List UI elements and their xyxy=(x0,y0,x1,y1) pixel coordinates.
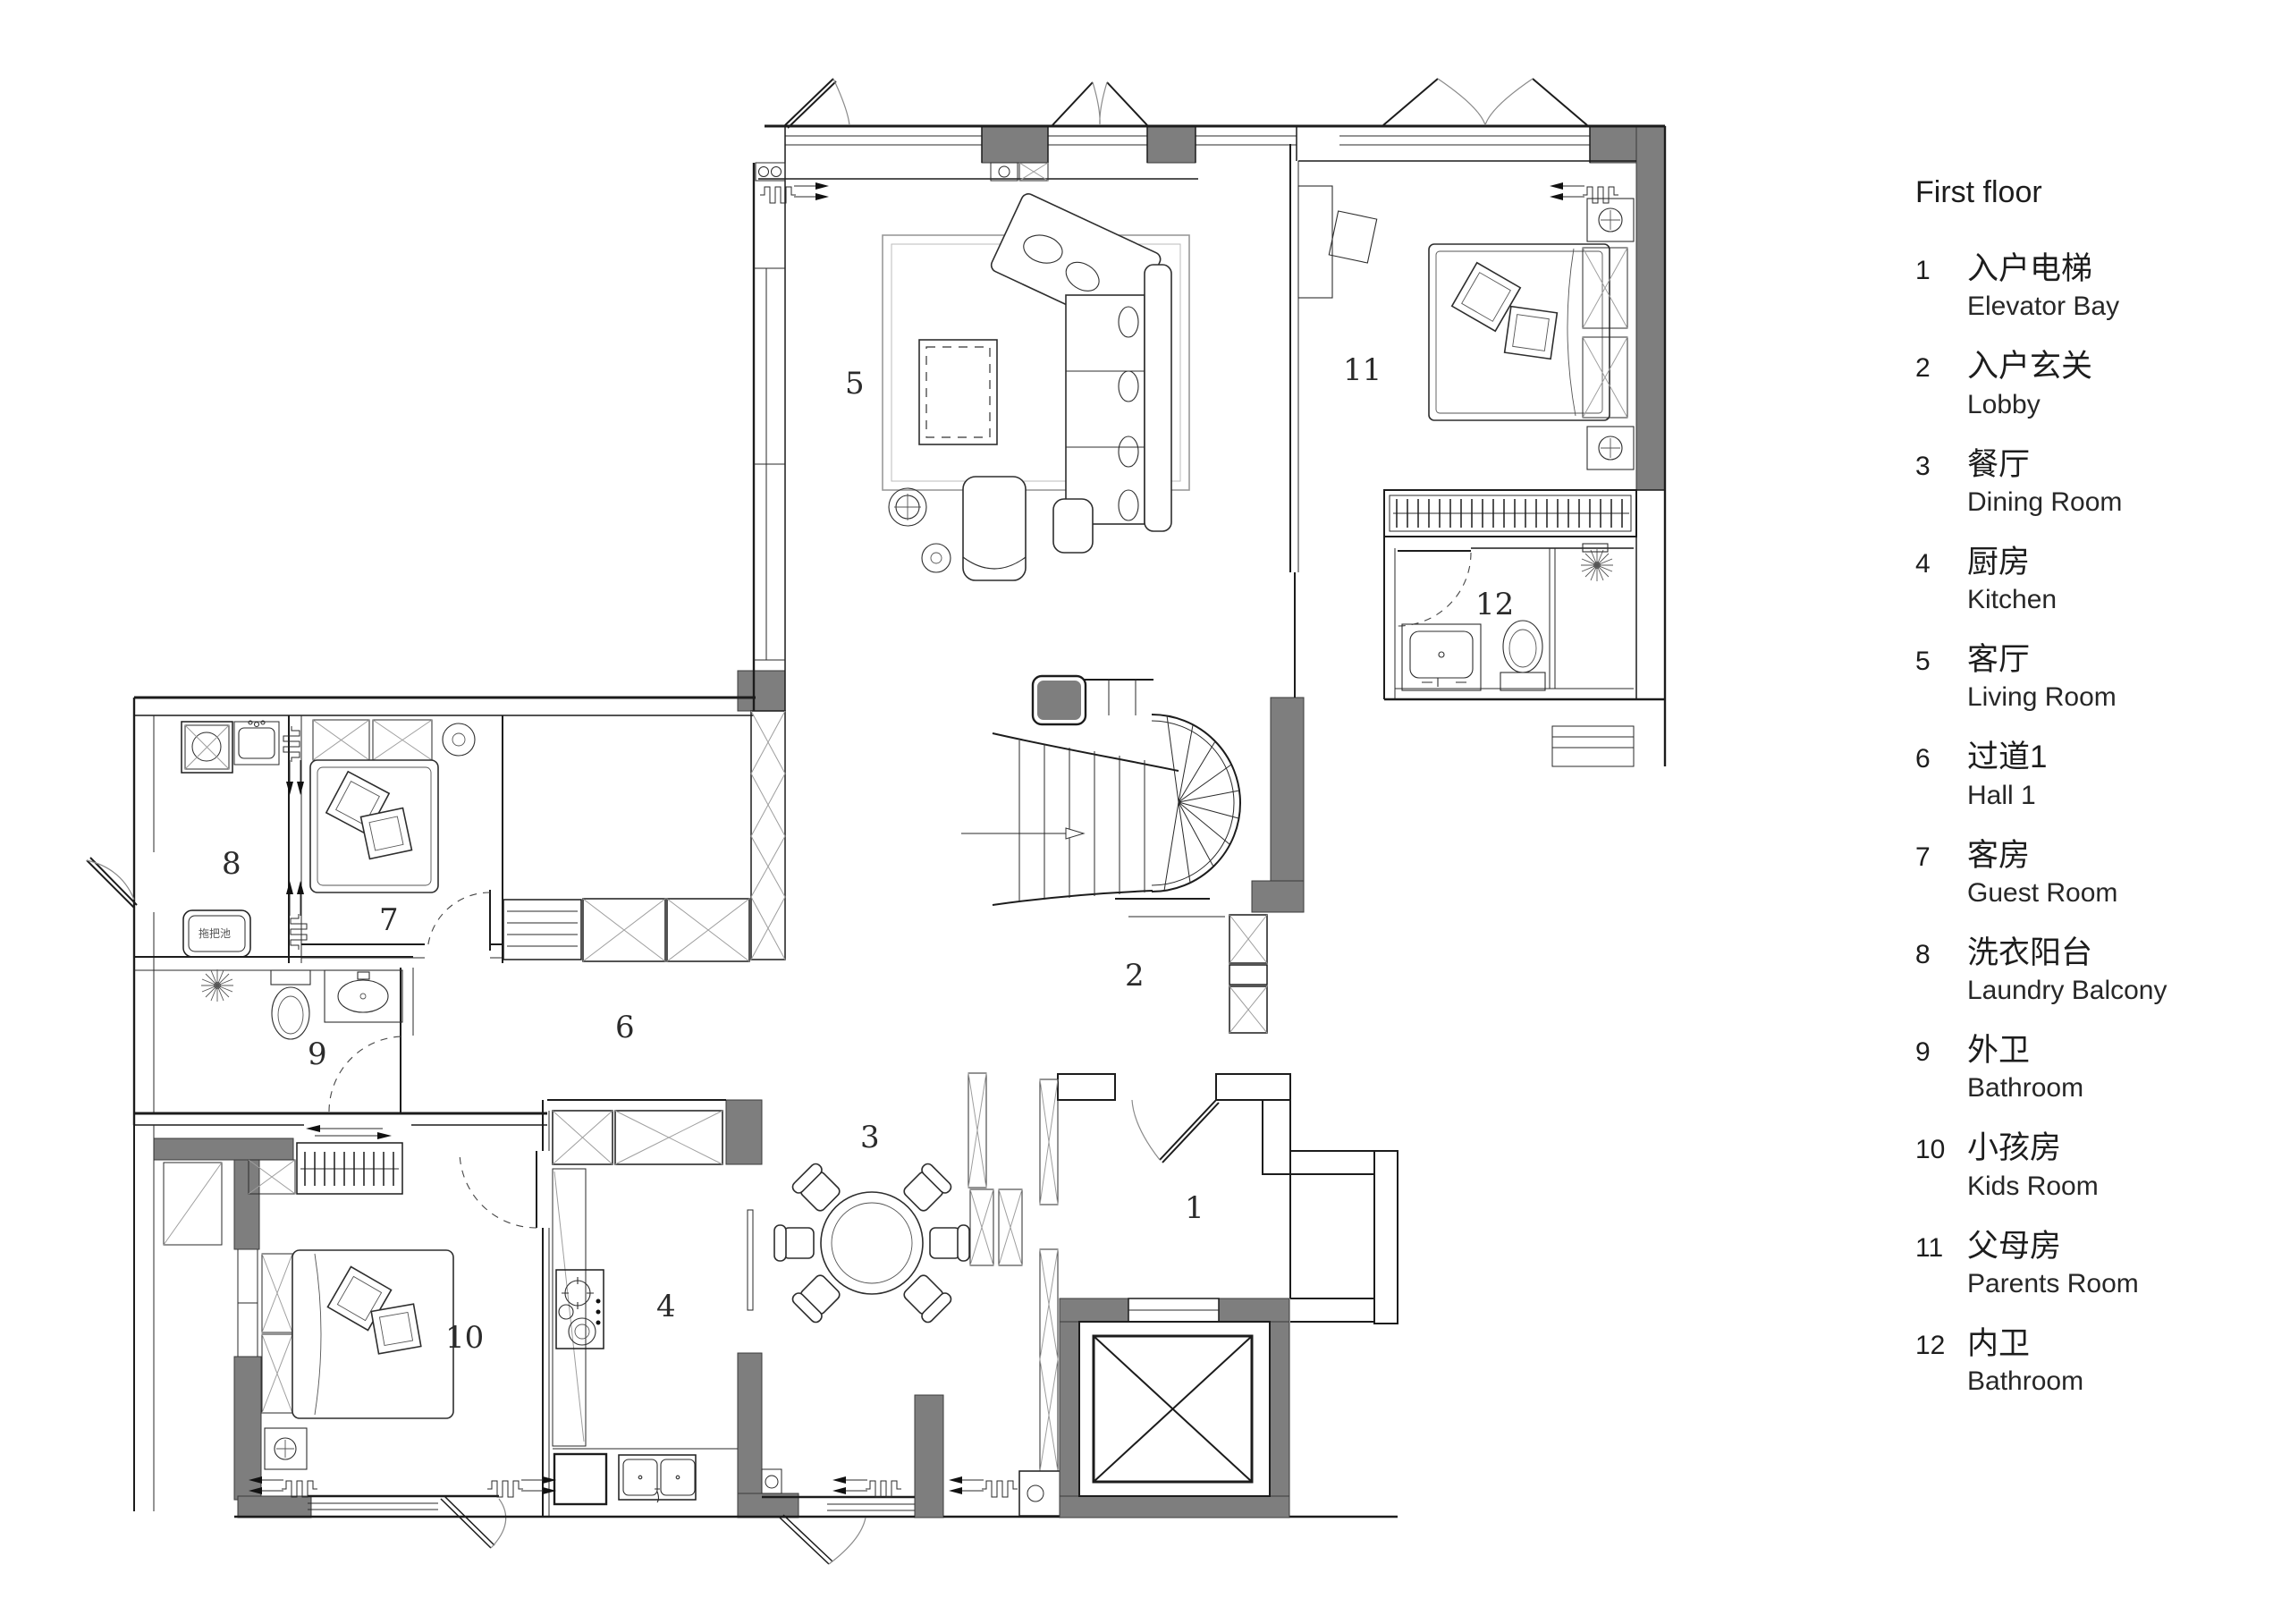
elevator-shaft xyxy=(1060,1298,1289,1518)
label-kitchen: 4 xyxy=(656,1289,676,1324)
legend-item-10: 10 小孩房 Kids Room xyxy=(1915,1130,2264,1200)
legend-item-7: 7 客房 Guest Room xyxy=(1915,838,2264,908)
label-bath-inner: 12 xyxy=(1475,587,1514,622)
label-hall1: 6 xyxy=(615,1010,635,1045)
legend-item-5: 5 客厅 Living Room xyxy=(1915,642,2264,712)
legend-item-12: 12 内卫 Bathroom xyxy=(1915,1326,2264,1396)
legend-zh: 父母房 xyxy=(1967,1229,2139,1265)
wardrobe-parents xyxy=(1384,490,1636,537)
legend-zh: 入户玄关 xyxy=(1967,349,2092,385)
legend-num: 2 xyxy=(1915,349,1967,419)
legend-num: 3 xyxy=(1915,447,1967,517)
label-kids: 10 xyxy=(445,1320,484,1356)
legend-item-4: 4 厨房 Kitchen xyxy=(1915,545,2264,614)
label-elevator-bay: 1 xyxy=(1185,1190,1204,1226)
legend-item-6: 6 过道1 Hall 1 xyxy=(1915,740,2264,809)
legend-zh: 内卫 xyxy=(1967,1326,2083,1362)
legend-zh: 小孩房 xyxy=(1967,1130,2099,1166)
legend-en: Kitchen xyxy=(1967,585,2057,614)
label-living: 5 xyxy=(845,366,865,402)
label-lobby: 2 xyxy=(1125,958,1145,994)
legend-en: Parents Room xyxy=(1967,1269,2139,1298)
legend-zh: 客厅 xyxy=(1967,642,2117,678)
legend-zh: 厨房 xyxy=(1967,545,2057,580)
legend-zh: 洗衣阳台 xyxy=(1967,935,2167,971)
parents-room-11 xyxy=(1298,186,1634,469)
legend-zh: 入户电梯 xyxy=(1967,251,2119,287)
legend-item-8: 8 洗衣阳台 Laundry Balcony xyxy=(1915,935,2264,1005)
spiral-staircase xyxy=(961,676,1240,905)
legend-item-2: 2 入户玄关 Lobby xyxy=(1915,349,2264,419)
legend-zh: 客房 xyxy=(1967,838,2117,874)
label-laundry: 8 xyxy=(222,846,241,882)
legend-num: 12 xyxy=(1915,1326,1967,1396)
label-dining: 3 xyxy=(860,1120,880,1155)
legend-en: Bathroom xyxy=(1967,1366,2083,1396)
legend-num: 4 xyxy=(1915,545,1967,614)
bathroom-9 xyxy=(201,969,402,1039)
legend-num: 8 xyxy=(1915,935,1967,1005)
legend-en: Bathroom xyxy=(1967,1073,2083,1103)
legend-zh: 餐厅 xyxy=(1967,447,2122,483)
legend-en: Lobby xyxy=(1967,390,2092,419)
legend-en: Hall 1 xyxy=(1967,781,2047,810)
legend-item-11: 11 父母房 Parents Room xyxy=(1915,1229,2264,1298)
legend-en: Kids Room xyxy=(1967,1171,2099,1201)
legend-zh: 过道1 xyxy=(1967,740,2047,775)
dining-room-3 xyxy=(774,1162,969,1324)
legend-num: 1 xyxy=(1915,251,1967,321)
floorplan-page: 拖把池 xyxy=(0,0,2273,1624)
legend-item-9: 9 外卫 Bathroom xyxy=(1915,1033,2264,1103)
label-guest: 7 xyxy=(379,902,399,938)
legend-zh: 外卫 xyxy=(1967,1033,2083,1069)
legend-en: Laundry Balcony xyxy=(1967,976,2167,1005)
bathroom-12 xyxy=(1384,490,1665,699)
legend-num: 5 xyxy=(1915,642,1967,712)
legend-num: 11 xyxy=(1915,1229,1967,1298)
legend-en: Guest Room xyxy=(1967,878,2117,908)
legend-item-1: 1 入户电梯 Elevator Bay xyxy=(1915,251,2264,321)
legend-num: 7 xyxy=(1915,838,1967,908)
living-room-5 xyxy=(883,191,1189,580)
label-bath-outer: 9 xyxy=(308,1036,327,1072)
kids-room-10 xyxy=(262,1250,453,1469)
legend: First floor 1 入户电梯 Elevator Bay 2 入户玄关 L… xyxy=(1915,175,2264,1424)
laundry-balcony-8: 拖把池 xyxy=(182,721,279,957)
legend-num: 9 xyxy=(1915,1033,1967,1103)
wardrobe-kids xyxy=(297,1143,402,1194)
guest-room-7 xyxy=(310,720,475,892)
legend-item-3: 3 餐厅 Dining Room xyxy=(1915,447,2264,517)
legend-en: Dining Room xyxy=(1967,487,2122,517)
label-parents: 11 xyxy=(1343,352,1382,388)
legend-num: 10 xyxy=(1915,1130,1967,1200)
legend-en: Elevator Bay xyxy=(1967,292,2119,321)
legend-title: First floor xyxy=(1915,175,2264,210)
legend-num: 6 xyxy=(1915,740,1967,809)
mop-sink-label: 拖把池 xyxy=(199,927,231,940)
legend-en: Living Room xyxy=(1967,682,2117,712)
sliding-door-arrows xyxy=(306,1125,392,1139)
